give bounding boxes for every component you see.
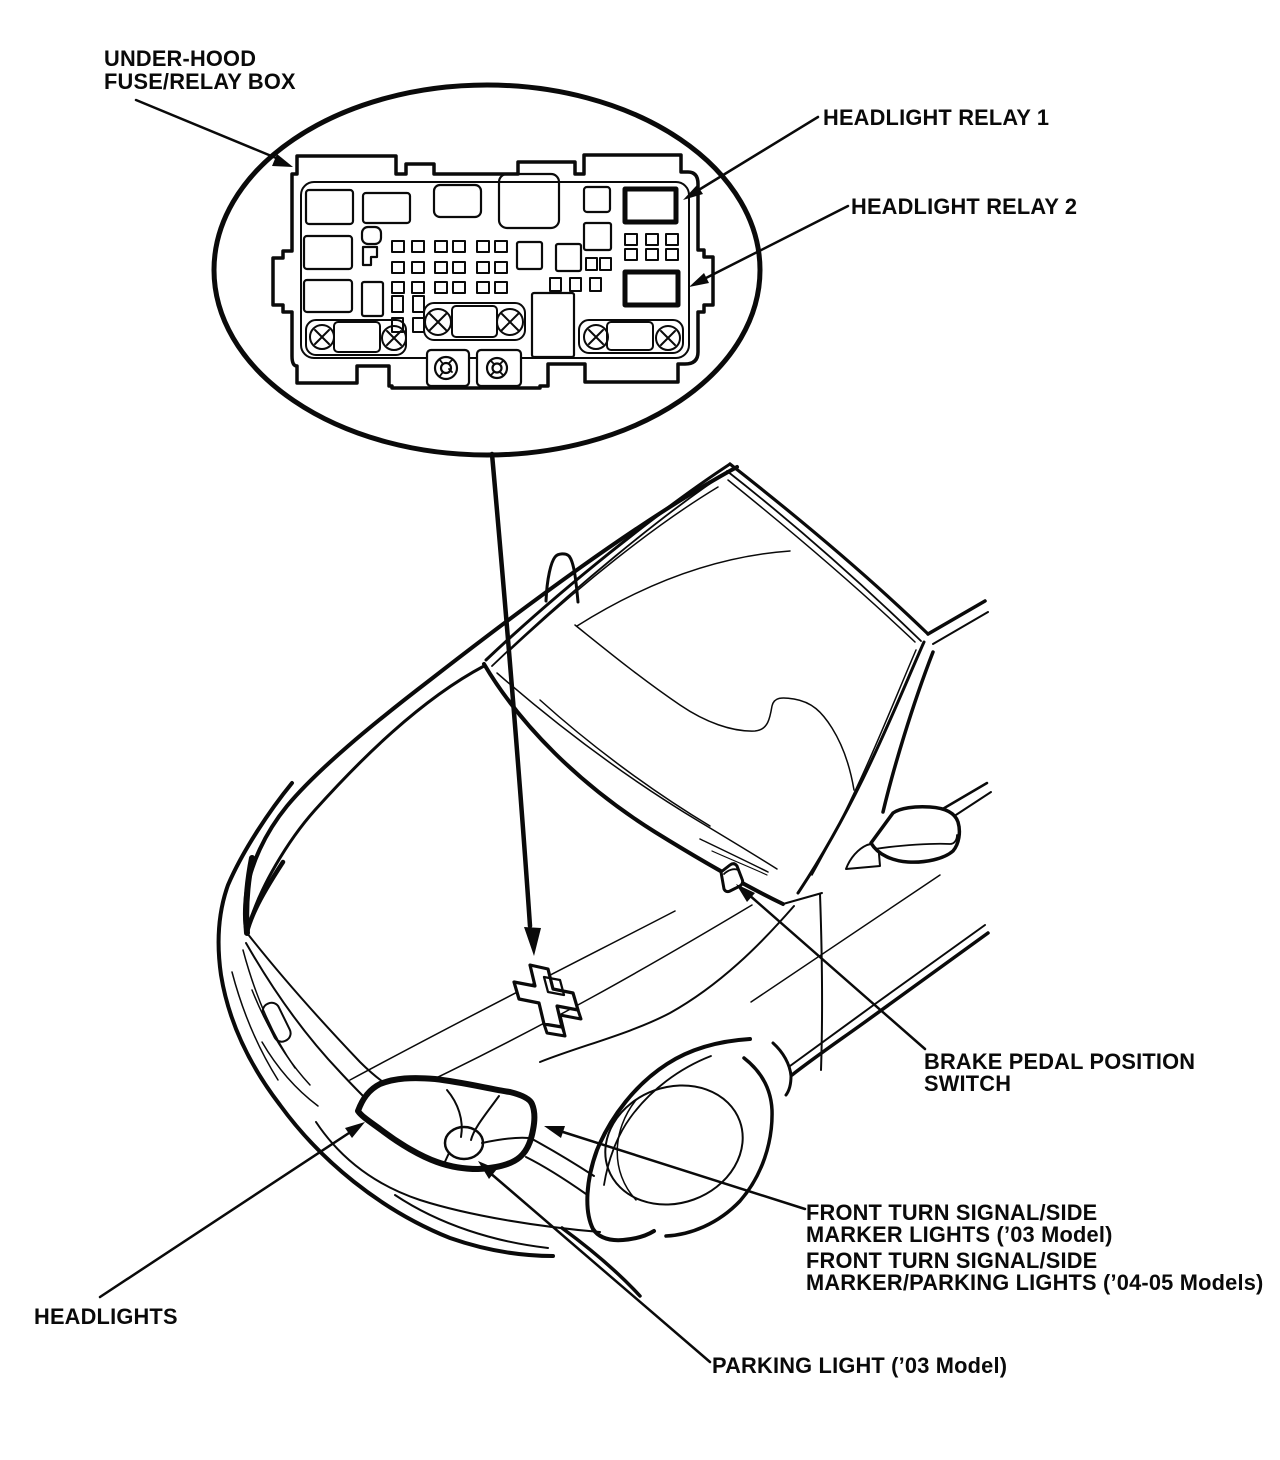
svg-text:HEADLIGHT RELAY 1: HEADLIGHT RELAY 1 (823, 105, 1049, 130)
svg-text:PARKING LIGHT (’03 Model): PARKING LIGHT (’03 Model) (712, 1353, 1007, 1378)
svg-text:MARKER LIGHTS (’03 Model): MARKER LIGHTS (’03 Model) (806, 1222, 1113, 1247)
svg-text:UNDER-HOOD: UNDER-HOOD (104, 46, 256, 71)
svg-text:SWITCH: SWITCH (924, 1071, 1011, 1096)
svg-text:FUSE/RELAY BOX: FUSE/RELAY BOX (104, 69, 296, 94)
svg-text:HEADLIGHT RELAY 2: HEADLIGHT RELAY 2 (851, 194, 1077, 219)
svg-text:HEADLIGHTS: HEADLIGHTS (34, 1304, 178, 1329)
svg-text:MARKER/PARKING LIGHTS (’04-05: MARKER/PARKING LIGHTS (’04-05 Models) (806, 1270, 1264, 1295)
